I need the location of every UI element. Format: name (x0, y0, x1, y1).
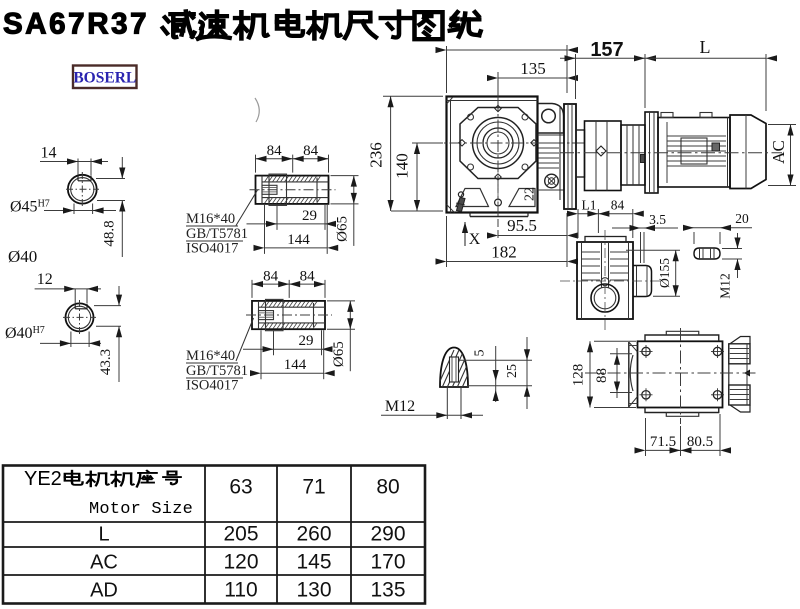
svg-text:182: 182 (491, 243, 517, 262)
svg-text:144: 144 (287, 232, 310, 248)
svg-text:YE2: YE2 (24, 468, 62, 490)
svg-text:144: 144 (284, 357, 307, 373)
svg-text:X: X (469, 231, 481, 248)
svg-text:135: 135 (520, 59, 546, 78)
svg-text:120: 120 (223, 551, 258, 574)
svg-text:20: 20 (735, 211, 749, 226)
svg-text:AD: AD (90, 580, 118, 602)
svg-text:80: 80 (376, 476, 399, 499)
svg-text:84: 84 (263, 268, 279, 284)
svg-text:290: 290 (370, 523, 405, 546)
svg-text:88: 88 (594, 368, 610, 383)
svg-text:M12: M12 (718, 273, 733, 299)
svg-text:5: 5 (473, 350, 488, 357)
svg-text:145: 145 (296, 551, 331, 574)
svg-text:205: 205 (223, 523, 258, 546)
svg-text:80.5: 80.5 (687, 434, 713, 450)
svg-text:L1: L1 (582, 198, 597, 213)
svg-text:71.5: 71.5 (650, 434, 676, 450)
svg-text:L: L (700, 37, 711, 57)
svg-text:M16*40: M16*40 (186, 348, 235, 364)
svg-text:84: 84 (611, 198, 625, 213)
svg-text:236: 236 (367, 142, 386, 168)
svg-text:M12: M12 (385, 398, 415, 415)
svg-text:128: 128 (571, 364, 587, 387)
svg-text:12: 12 (37, 271, 53, 288)
svg-text:14: 14 (41, 145, 57, 162)
svg-text:L: L (98, 524, 109, 546)
svg-text:BOSERL: BOSERL (73, 70, 136, 87)
svg-text:Motor Size: Motor Size (89, 500, 193, 519)
svg-text:130: 130 (296, 579, 331, 602)
svg-text:84: 84 (300, 268, 316, 284)
svg-text:71: 71 (302, 476, 325, 499)
svg-text:29: 29 (302, 208, 317, 224)
svg-text:ISO4017: ISO4017 (186, 241, 238, 257)
svg-text:M16*40: M16*40 (186, 211, 235, 227)
svg-text:84: 84 (267, 143, 283, 159)
svg-text:Ø155: Ø155 (657, 258, 672, 288)
svg-text:SA67R37: SA67R37 (3, 8, 149, 41)
svg-text:84: 84 (303, 143, 319, 159)
svg-text:157: 157 (590, 39, 623, 61)
svg-text:29: 29 (299, 333, 314, 349)
svg-text:25: 25 (505, 364, 520, 378)
svg-text:3.5: 3.5 (649, 212, 666, 227)
svg-text:Ø40H7: Ø40H7 (5, 325, 45, 342)
svg-text:95.5: 95.5 (507, 216, 537, 235)
svg-text:Ø65: Ø65 (335, 216, 351, 242)
svg-text:110: 110 (224, 579, 257, 602)
svg-text:43.3: 43.3 (98, 349, 114, 375)
svg-text:22: 22 (523, 187, 538, 201)
svg-text:63: 63 (229, 476, 252, 499)
svg-text:Ø40: Ø40 (8, 247, 37, 266)
svg-text:Ø45H7: Ø45H7 (10, 199, 50, 216)
svg-text:170: 170 (370, 551, 405, 574)
svg-text:AC: AC (90, 552, 118, 574)
svg-text:AC: AC (769, 140, 788, 164)
svg-text:260: 260 (296, 523, 331, 546)
svg-text:Ø65: Ø65 (331, 341, 347, 367)
svg-text:135: 135 (370, 579, 405, 602)
svg-text:ISO4017: ISO4017 (186, 378, 238, 394)
svg-text:48.8: 48.8 (102, 220, 118, 246)
svg-text:140: 140 (393, 153, 412, 179)
